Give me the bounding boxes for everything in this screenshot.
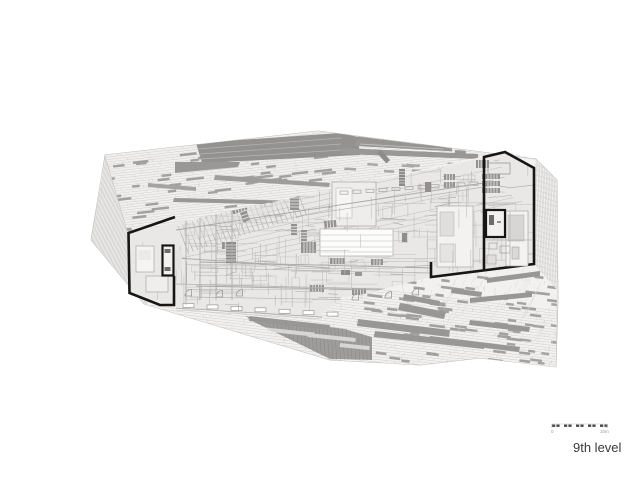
svg-text:0: 0 <box>551 429 554 434</box>
svg-text:10m: 10m <box>600 429 609 434</box>
svg-text:9th level: 9th level <box>573 440 622 455</box>
